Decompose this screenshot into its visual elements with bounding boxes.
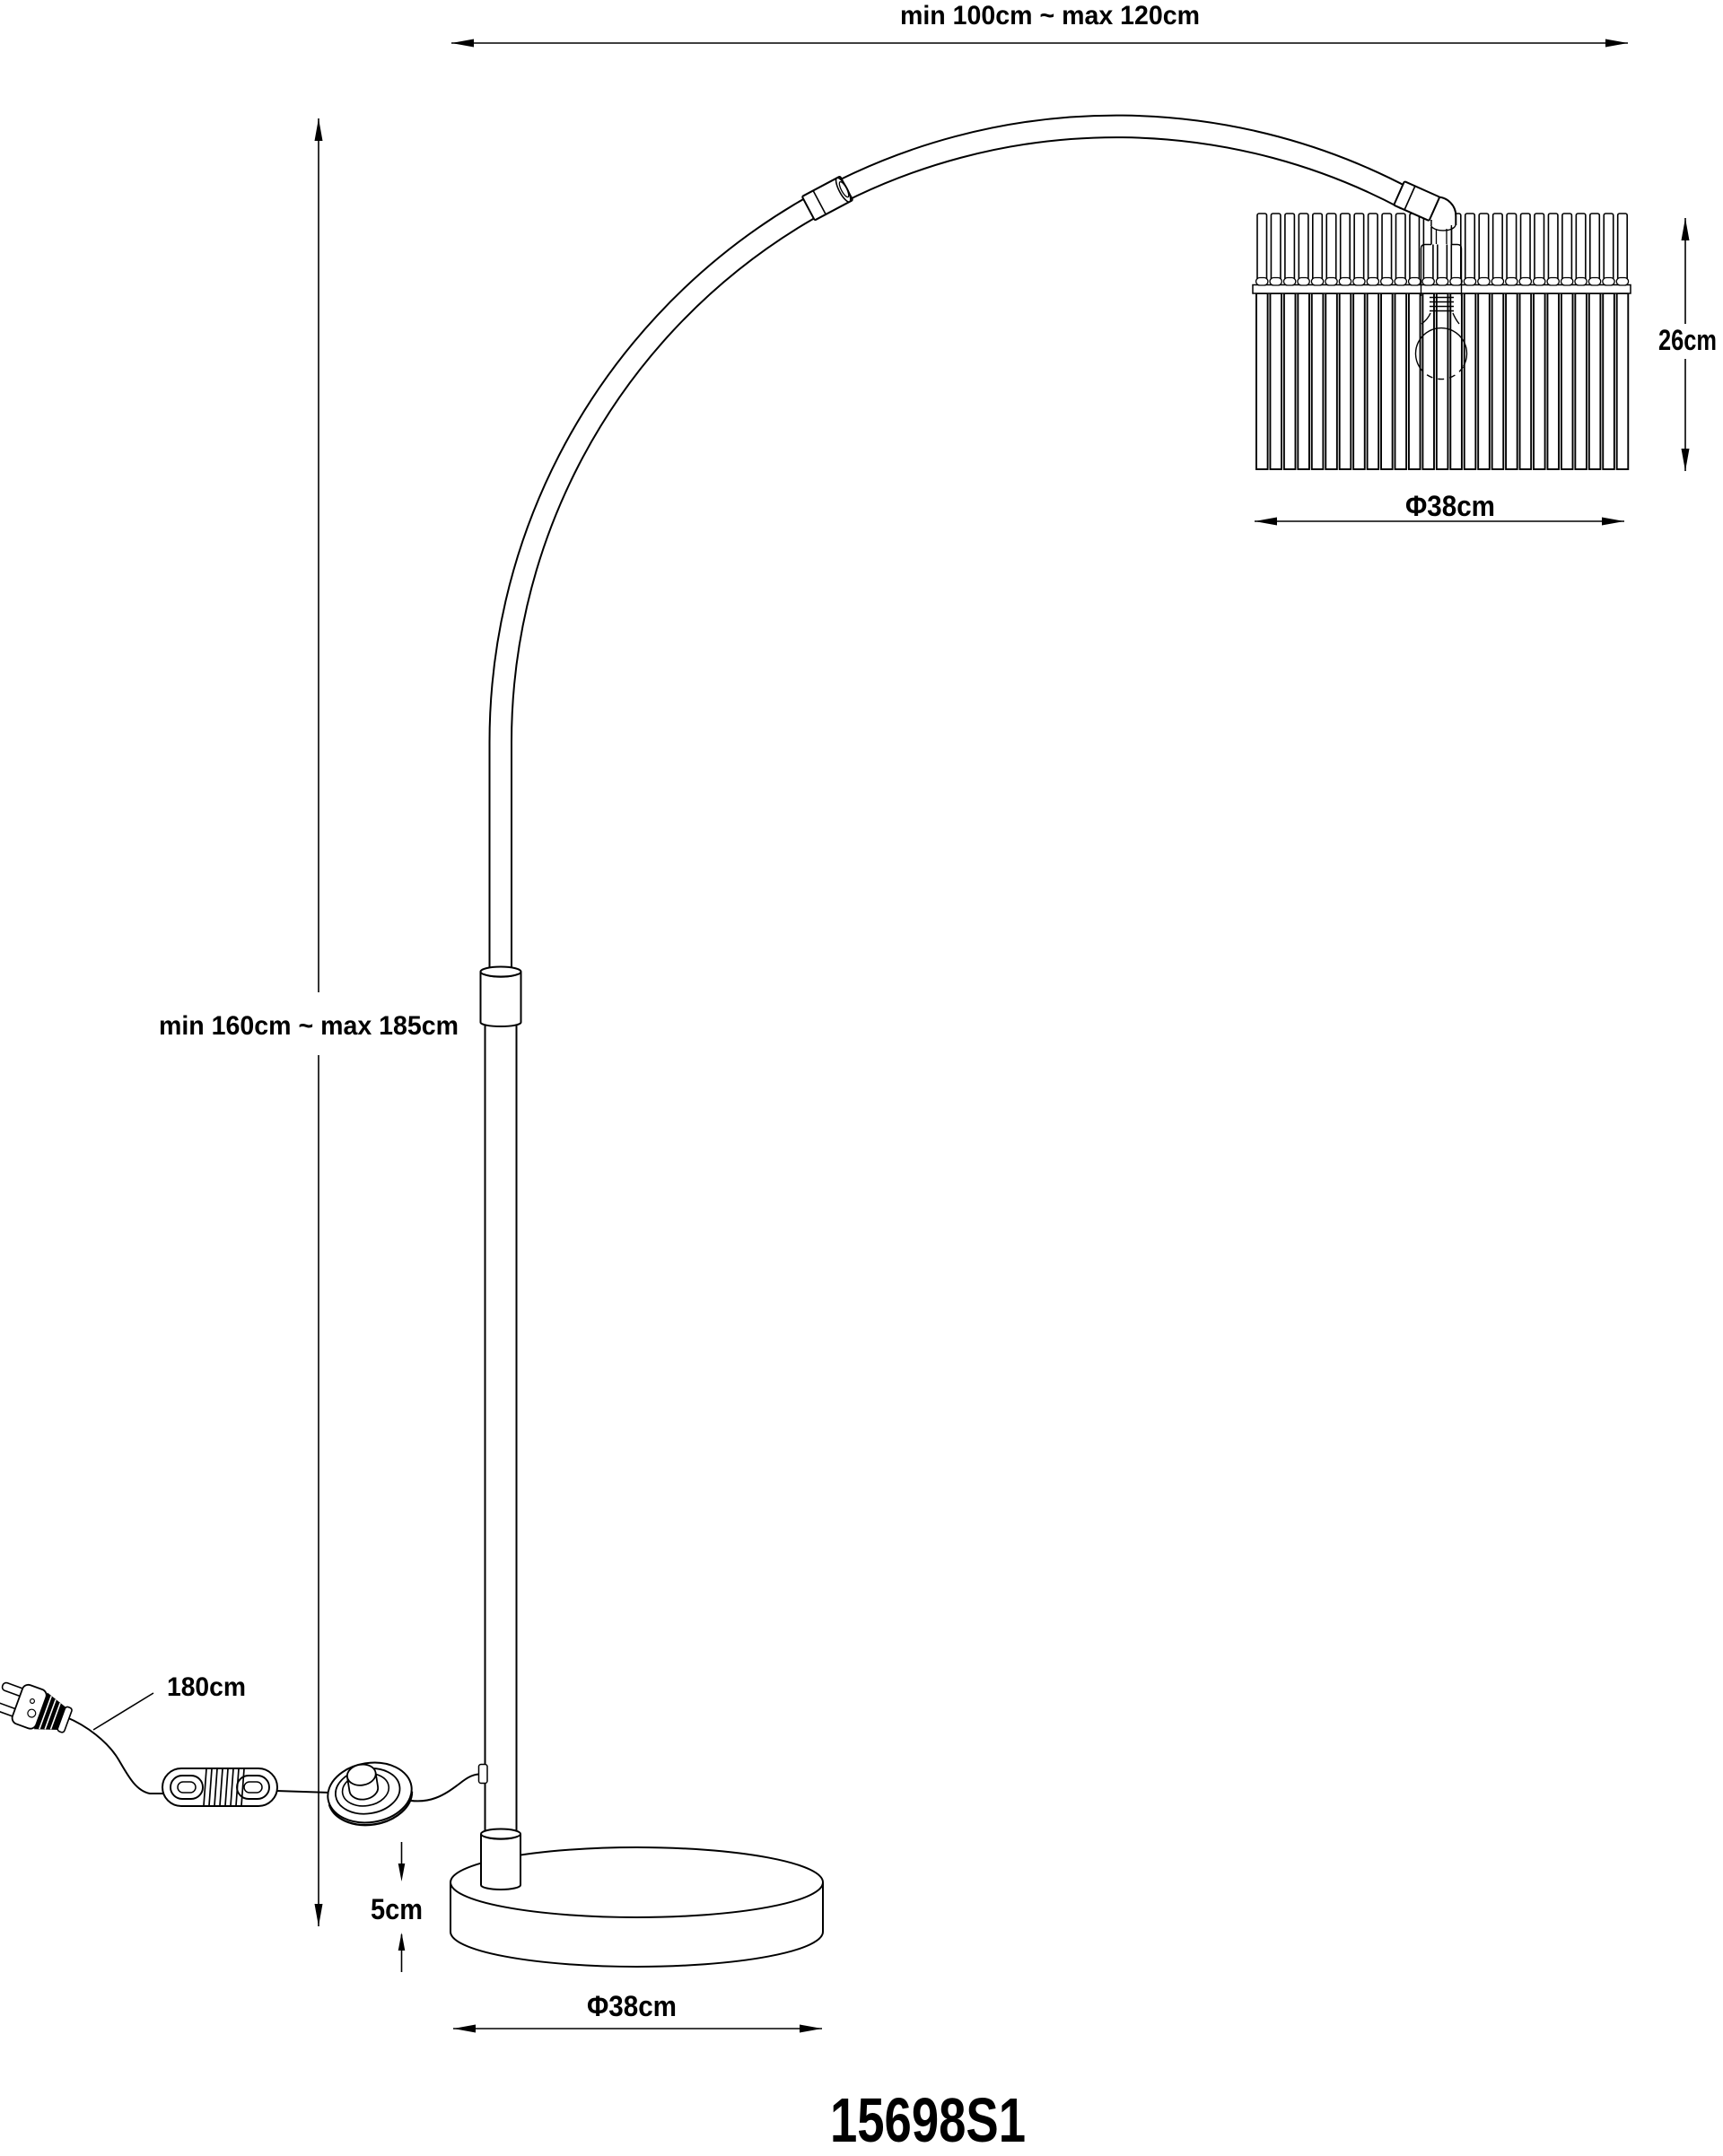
svg-text:min 160cm ~ max 185cm: min 160cm ~ max 185cm bbox=[159, 1011, 459, 1041]
svg-text:180cm: 180cm bbox=[167, 1672, 246, 1702]
svg-text:15698S1: 15698S1 bbox=[830, 2085, 1026, 2155]
svg-text:Φ38cm: Φ38cm bbox=[587, 1990, 677, 2022]
svg-text:26cm: 26cm bbox=[1658, 324, 1717, 356]
svg-text:5cm: 5cm bbox=[371, 1893, 423, 1925]
svg-text:Φ38cm: Φ38cm bbox=[1405, 490, 1495, 522]
svg-text:min 100cm ~ max 120cm: min 100cm ~ max 120cm bbox=[900, 1, 1200, 31]
